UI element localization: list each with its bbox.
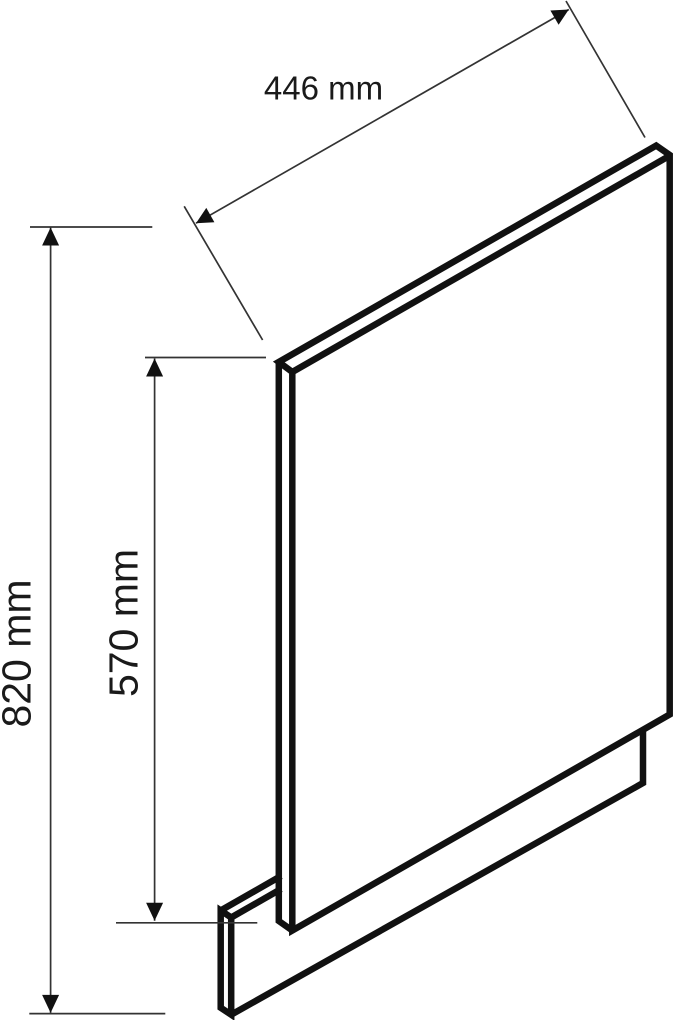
svg-text:820 mm: 820 mm xyxy=(0,579,40,727)
svg-text:446 mm: 446 mm xyxy=(264,70,383,107)
svg-text:570 mm: 570 mm xyxy=(101,549,147,697)
